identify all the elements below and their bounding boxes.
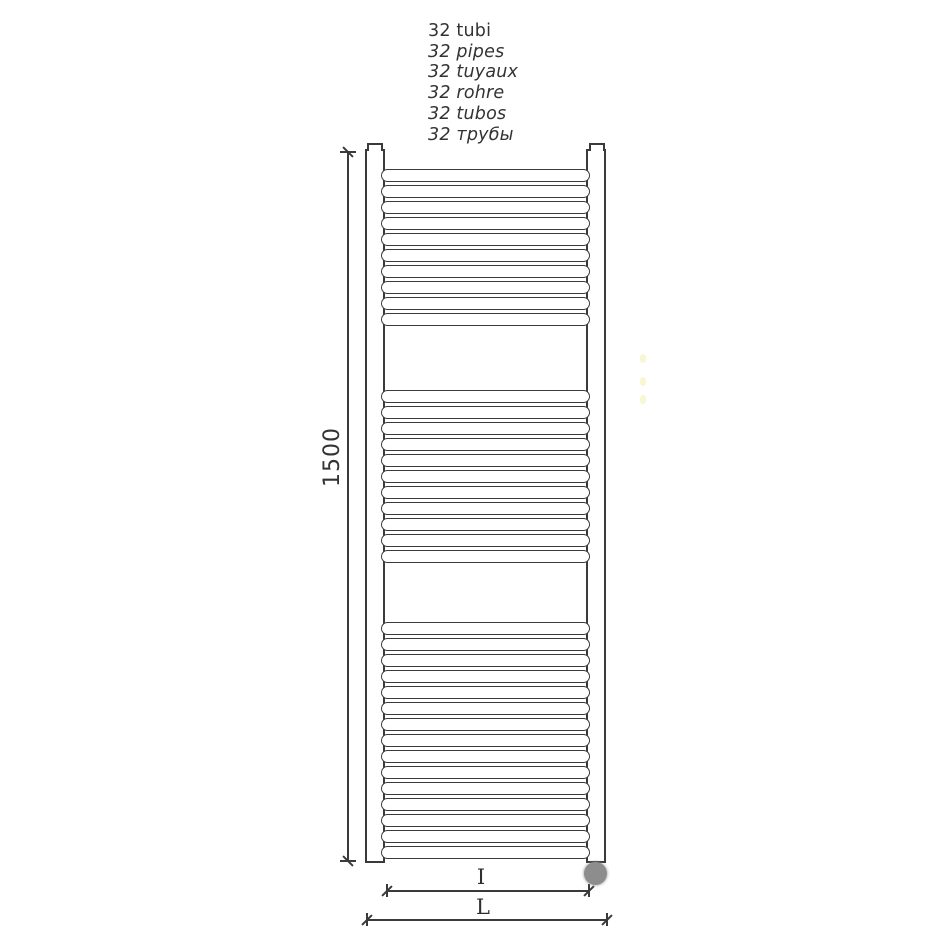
radiator-tube (381, 406, 590, 419)
radiator-tube (381, 249, 590, 262)
radiator-tube (381, 654, 590, 667)
radiator-tube (381, 718, 590, 731)
right-rail-top-cap (589, 143, 605, 151)
radiator-tube (381, 550, 590, 563)
caption-line-english: 32 pipes (428, 42, 518, 63)
tube-span-dimension-label: I (459, 865, 503, 889)
radiator-tube (381, 766, 590, 779)
caption-line-italian: 32 tubi (428, 21, 518, 42)
radiator-tube (381, 297, 590, 310)
radiator-tube (381, 438, 590, 451)
radiator-tube (381, 814, 590, 827)
radiator-tube (381, 470, 590, 483)
caption-line-german: 32 rohre (428, 83, 518, 104)
scan-artifact (640, 377, 646, 386)
radiator-tube (381, 534, 590, 547)
radiator-tube (381, 846, 590, 859)
left-rail-top-cap (367, 143, 383, 151)
height-dimension-label: 1500 (320, 409, 346, 505)
radiator-tube (381, 486, 590, 499)
radiator-tube (381, 217, 590, 230)
radiator-tube (381, 422, 590, 435)
radiator-tube (381, 830, 590, 843)
height-dimension-line (347, 152, 349, 862)
radiator-tube (381, 750, 590, 763)
radiator-tube (381, 281, 590, 294)
radiator-tube (381, 233, 590, 246)
radiator-tube (381, 185, 590, 198)
radiator-tube (381, 686, 590, 699)
radiator-tube (381, 670, 590, 683)
radiator-tube (381, 734, 590, 747)
radiator-tube (381, 454, 590, 467)
scan-artifact (640, 395, 646, 404)
overall-width-dimension-line (367, 919, 608, 921)
caption-line-french: 32 tuyaux (428, 62, 518, 83)
radiator-tube (381, 702, 590, 715)
radiator-tube (381, 622, 590, 635)
radiator-tube (381, 782, 590, 795)
radiator-tube (381, 798, 590, 811)
radiator-tube (381, 313, 590, 326)
radiator-tube (381, 518, 590, 531)
caption-line-spanish: 32 tubos (428, 104, 518, 125)
radiator-tube (381, 638, 590, 651)
radiator-tube (381, 265, 590, 278)
tube-count-caption: 32 tubi 32 pipes 32 tuyaux 32 rohre 32 t… (428, 21, 518, 145)
electric-element-knob (584, 862, 607, 885)
radiator-tube (381, 502, 590, 515)
radiator-tube (381, 169, 590, 182)
radiator-dimension-diagram: 32 tubi 32 pipes 32 tuyaux 32 rohre 32 t… (0, 0, 950, 950)
tube-span-dimension-line (387, 890, 589, 892)
radiator-tube (381, 201, 590, 214)
overall-width-dimension-label: L (461, 895, 505, 919)
scan-artifact (640, 354, 646, 363)
caption-line-russian: 32 трубы (428, 125, 518, 146)
radiator-tube (381, 390, 590, 403)
